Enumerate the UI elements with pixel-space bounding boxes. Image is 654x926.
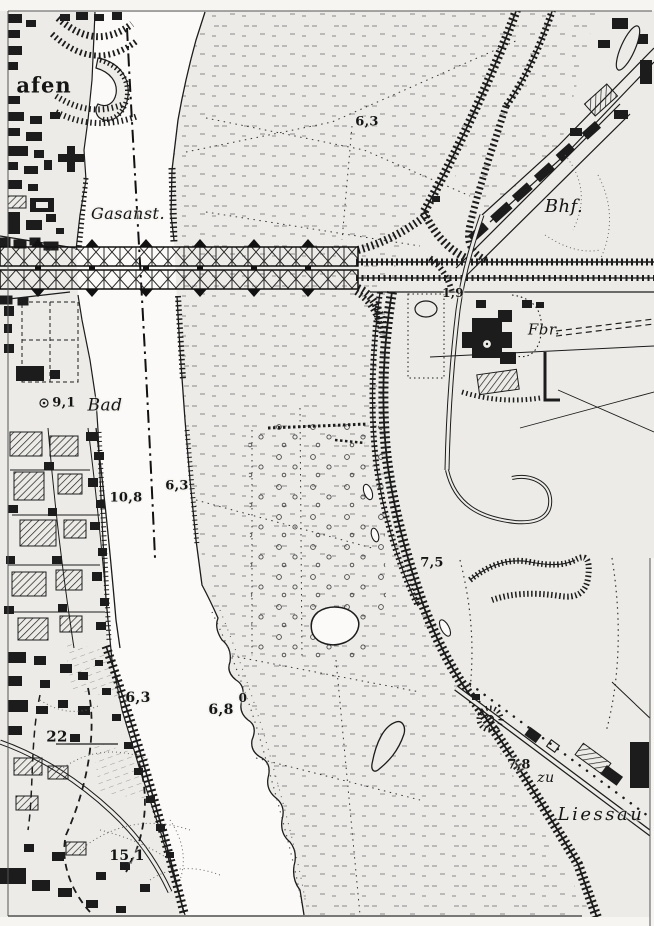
road-bridge-span	[0, 270, 358, 289]
map-canvas: afenGasanst.Bhf.BadFbr.zuLiessau 6,31,99…	[0, 0, 654, 926]
rail-bridge-span	[0, 247, 358, 266]
map-artwork	[0, 0, 654, 926]
